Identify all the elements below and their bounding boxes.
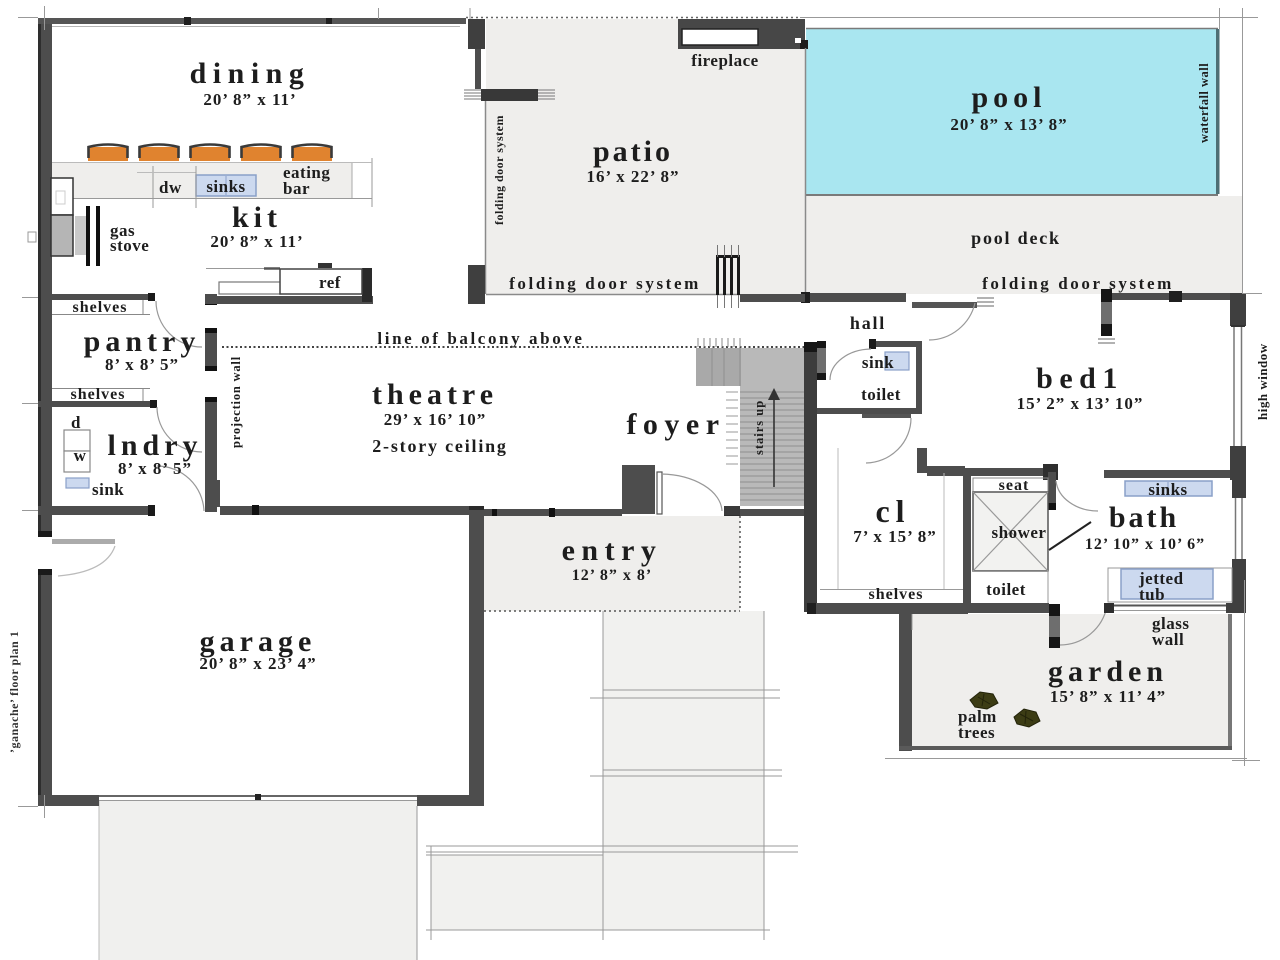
svg-text:fireplace: fireplace [691, 51, 758, 70]
svg-text:15’ 2” x 13’ 10”: 15’ 2” x 13’ 10” [1017, 394, 1144, 413]
svg-text:shelves: shelves [869, 586, 924, 603]
svg-text:toilet: toilet [861, 385, 901, 404]
svg-text:12’ 10” x 10’ 6”: 12’ 10” x 10’ 6” [1085, 536, 1205, 553]
svg-text:20’ 8” x 23’ 4”: 20’ 8” x 23’ 4” [199, 654, 316, 673]
svg-text:kit: kit [232, 201, 282, 234]
svg-text:sinks: sinks [1148, 480, 1187, 499]
svg-text:ref: ref [319, 273, 341, 292]
svg-text:foyer: foyer [626, 408, 725, 441]
svg-text:wall: wall [1152, 630, 1184, 649]
svg-text:seat: seat [999, 477, 1030, 494]
svg-text:bar: bar [283, 179, 310, 198]
svg-text:sink: sink [92, 480, 124, 499]
svg-text:bed1: bed1 [1036, 362, 1124, 395]
svg-text:shelves: shelves [73, 299, 128, 316]
svg-text:w: w [74, 446, 87, 465]
svg-text:20’ 8” x 11’: 20’ 8” x 11’ [210, 232, 303, 251]
svg-text:folding door system: folding door system [492, 115, 506, 225]
svg-text:’ganache’ floor plan 1: ’ganache’ floor plan 1 [7, 631, 21, 753]
svg-text:pool: pool [971, 81, 1046, 114]
svg-text:bath: bath [1109, 501, 1179, 534]
svg-text:8’ x 8’ 5”: 8’ x 8’ 5” [118, 459, 192, 478]
svg-text:stairs up: stairs up [752, 400, 766, 455]
svg-text:8’ x 8’ 5”: 8’ x 8’ 5” [105, 355, 179, 374]
svg-text:hall: hall [850, 313, 886, 333]
svg-text:pool deck: pool deck [971, 228, 1061, 248]
svg-text:patio: patio [593, 135, 673, 168]
svg-text:projection wall: projection wall [229, 356, 243, 448]
svg-text:high window: high window [1255, 343, 1270, 420]
svg-text:dw: dw [159, 178, 182, 197]
svg-text:shower: shower [992, 523, 1047, 542]
svg-text:20’ 8” x 11’: 20’ 8” x 11’ [203, 90, 296, 109]
svg-text:2-story ceiling: 2-story ceiling [372, 436, 507, 456]
svg-text:cl: cl [875, 493, 910, 529]
svg-text:sink: sink [862, 353, 894, 372]
svg-text:folding door system: folding door system [509, 274, 701, 293]
svg-text:7’ x 15’ 8”: 7’ x 15’ 8” [853, 527, 937, 546]
svg-text:dining: dining [190, 57, 311, 90]
svg-text:theatre: theatre [372, 378, 498, 411]
svg-text:garden: garden [1048, 655, 1168, 688]
svg-text:d: d [71, 413, 81, 432]
svg-text:folding door system: folding door system [982, 274, 1174, 293]
svg-text:line of balcony above: line of balcony above [377, 329, 584, 348]
svg-text:waterfall wall: waterfall wall [1197, 63, 1211, 143]
svg-text:16’ x 22’ 8”: 16’ x 22’ 8” [586, 167, 679, 186]
svg-text:12’ 8” x 8’: 12’ 8” x 8’ [572, 567, 652, 584]
svg-text:15’ 8” x 11’ 4”: 15’ 8” x 11’ 4” [1050, 687, 1166, 706]
svg-text:toilet: toilet [986, 580, 1026, 599]
svg-text:20’ 8” x 13’ 8”: 20’ 8” x 13’ 8” [950, 115, 1067, 134]
svg-text:lndry: lndry [107, 429, 202, 462]
svg-text:sinks: sinks [206, 177, 245, 196]
svg-text:29’ x 16’ 10”: 29’ x 16’ 10” [384, 410, 487, 429]
svg-text:stove: stove [110, 236, 149, 255]
svg-text:trees: trees [958, 723, 995, 742]
svg-text:entry: entry [562, 534, 663, 567]
svg-text:pantry: pantry [84, 325, 201, 358]
svg-text:shelves: shelves [71, 386, 126, 403]
svg-text:tub: tub [1139, 585, 1165, 604]
